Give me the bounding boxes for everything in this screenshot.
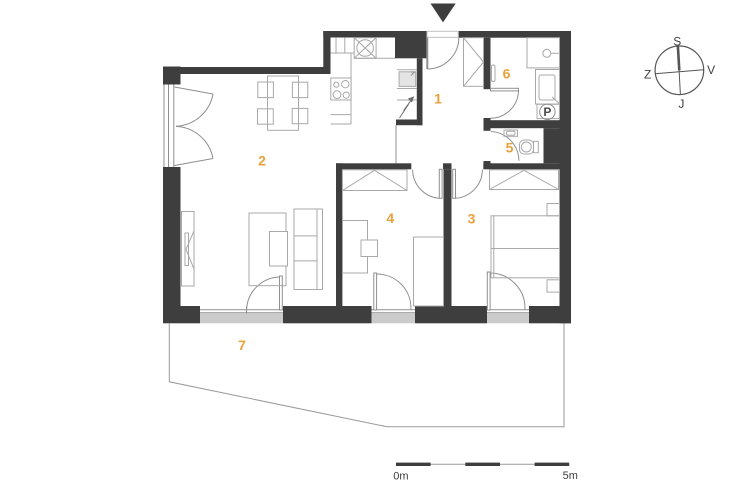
svg-text:2: 2 bbox=[258, 153, 266, 169]
svg-text:Z: Z bbox=[644, 67, 651, 81]
svg-text:1: 1 bbox=[434, 91, 442, 107]
svg-text:S: S bbox=[673, 35, 681, 49]
svg-text:P: P bbox=[543, 105, 551, 119]
svg-text:3: 3 bbox=[468, 211, 476, 227]
svg-text:0m: 0m bbox=[393, 470, 408, 482]
svg-text:7: 7 bbox=[238, 337, 246, 353]
svg-text:J: J bbox=[678, 97, 684, 111]
svg-text:6: 6 bbox=[503, 66, 511, 82]
svg-text:5: 5 bbox=[506, 140, 514, 156]
svg-text:4: 4 bbox=[386, 210, 394, 226]
svg-text:V: V bbox=[707, 63, 715, 77]
svg-text:5m: 5m bbox=[563, 470, 578, 482]
